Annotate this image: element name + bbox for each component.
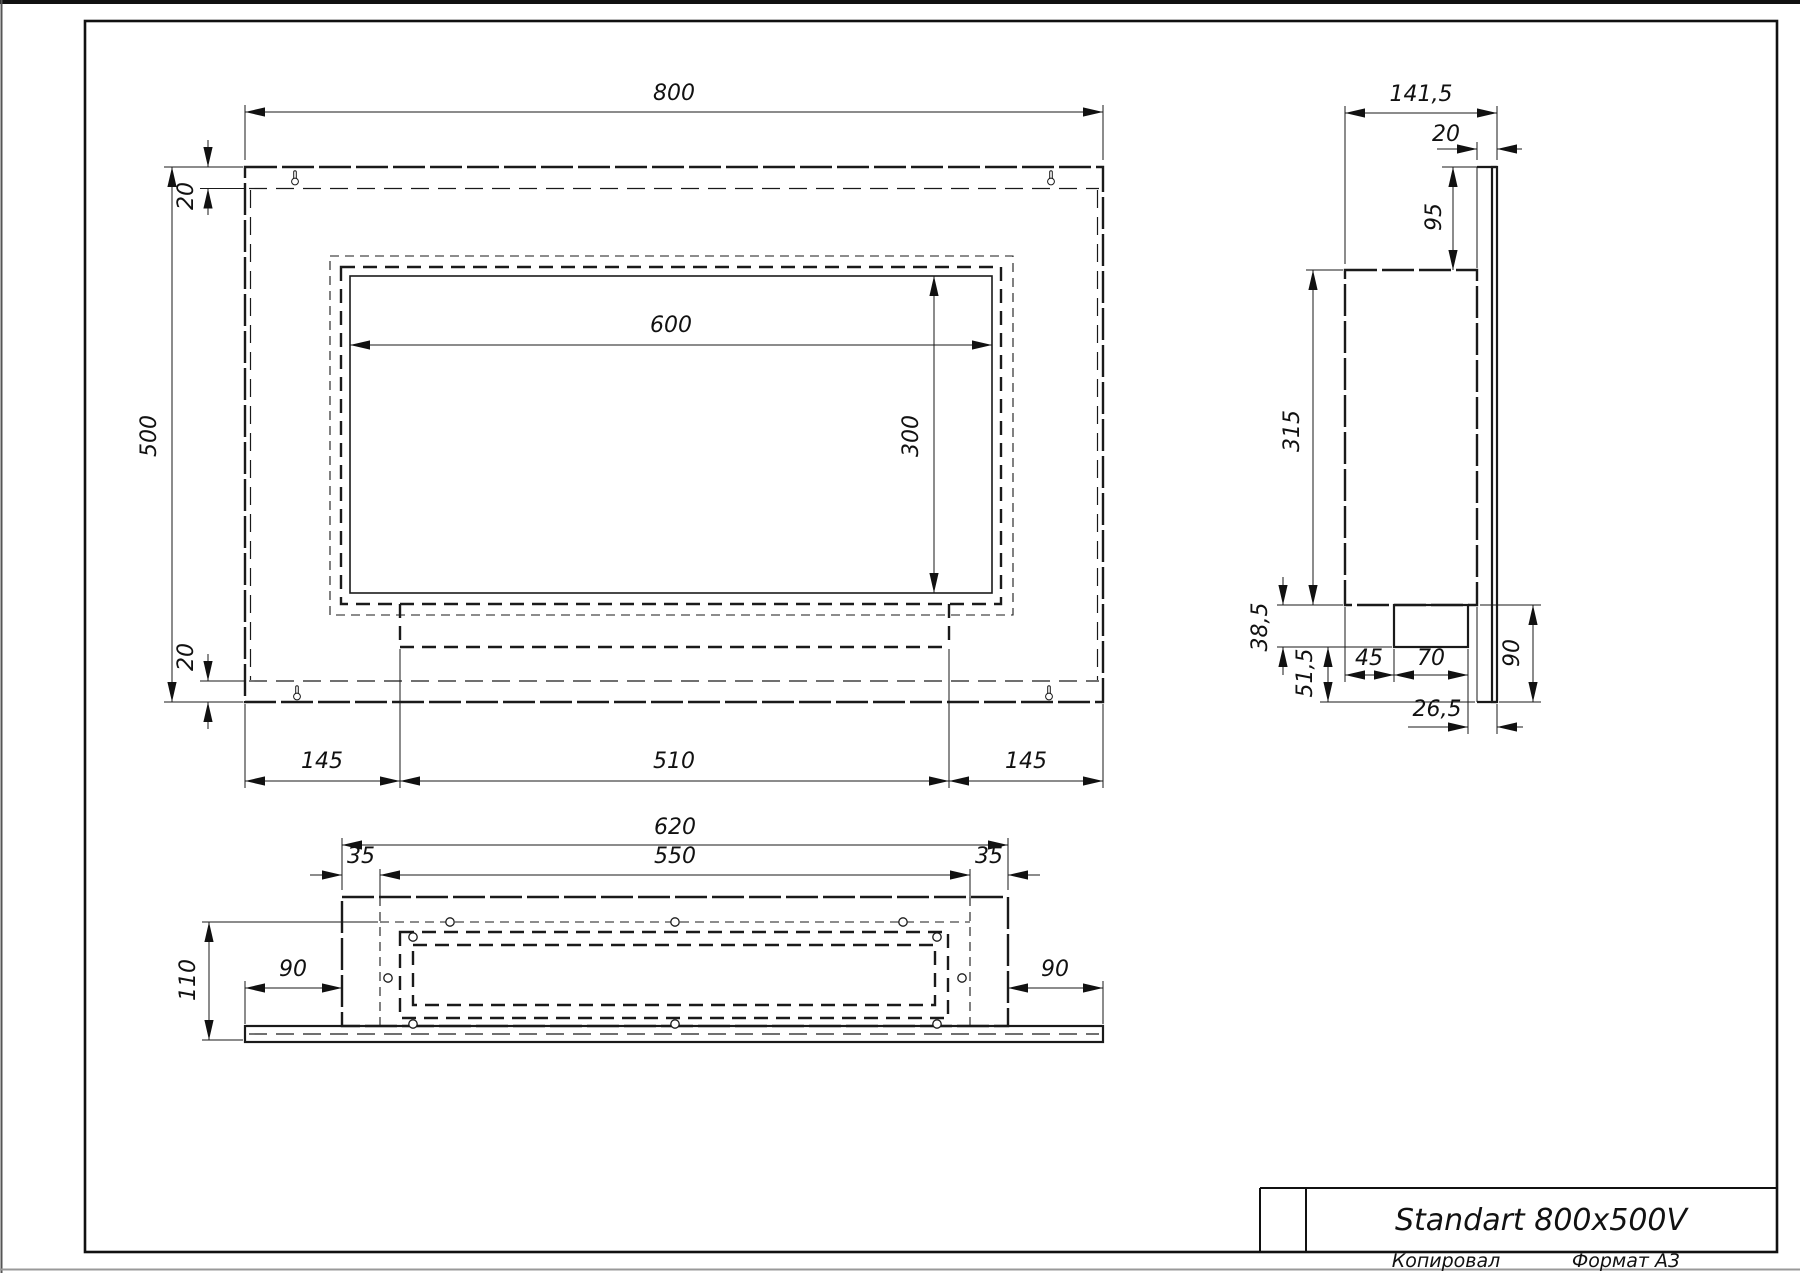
drawing-sheet: 800 500 20 20 600 300 145 510 145	[0, 0, 1800, 1273]
drawing-canvas: 800 500 20 20 600 300 145 510 145	[0, 0, 1800, 1273]
side-dimension-lines	[1283, 113, 1533, 727]
side-tray-outline	[1394, 605, 1468, 647]
bottom-extension-lines	[202, 838, 1103, 1040]
bottom-hidden-frame-inner	[413, 945, 935, 1005]
dim-front-width: 800	[653, 81, 695, 106]
dim-side-box-height: 315	[1280, 410, 1305, 452]
screen-top-edge	[0, 0, 1800, 4]
dim-front-flange-bottom: 20	[174, 643, 199, 671]
dim-front-flange-top: 20	[174, 182, 199, 210]
side-front-panel	[1492, 167, 1497, 702]
dim-front-opening-width: 600	[650, 313, 692, 338]
footer-format-label: Формат А3	[1572, 1250, 1680, 1272]
dim-front-opening-height: 300	[899, 415, 924, 457]
dim-side-flange-depth: 20	[1432, 122, 1460, 147]
dim-front-margin-left: 145	[301, 749, 343, 774]
dim-side-tray-drop: 38,5	[1248, 603, 1273, 652]
dim-side-top-offset: 95	[1422, 203, 1447, 231]
dim-bottom-overhang-left: 90	[279, 957, 307, 982]
dim-side-tray-depth: 70	[1417, 646, 1445, 671]
dim-bottom-box-width: 620	[654, 815, 696, 840]
dim-side-bottom-gap: 51,5	[1293, 649, 1318, 698]
front-view: 800 500 20 20 600 300 145 510 145	[137, 81, 1103, 788]
bottom-mounting-holes	[384, 918, 966, 1028]
drawing-title: Standart 800x500V	[1395, 1203, 1690, 1238]
dim-side-bottom-height: 90	[1500, 639, 1525, 667]
dim-side-depth: 141,5	[1390, 82, 1453, 107]
dim-front-tray-width: 510	[653, 749, 695, 774]
side-view: 141,5 20 95 315 38,5 51,5 45 70 90 26,5	[1248, 82, 1541, 734]
dim-bottom-inset-right: 35	[975, 844, 1003, 869]
front-extension-lines	[164, 105, 1103, 788]
side-box-outline	[1345, 270, 1477, 605]
dim-bottom-depth: 110	[176, 959, 201, 1001]
dim-side-tray-offset: 45	[1355, 646, 1383, 671]
dim-front-margin-right: 145	[1005, 749, 1047, 774]
title-block: Standart 800x500V	[1260, 1188, 1777, 1252]
bottom-box-outline	[342, 897, 1008, 1026]
front-panel-outline	[245, 167, 1103, 702]
dim-side-tray-to-front: 26,5	[1413, 697, 1462, 722]
bottom-view: 620 550 35 35 110 90 90	[176, 815, 1103, 1042]
dim-bottom-inset-left: 35	[347, 844, 375, 869]
drawing-frame	[85, 21, 1777, 1252]
footer-copied-label: Копировал	[1392, 1250, 1501, 1272]
dim-front-height: 500	[137, 415, 162, 457]
keyhole-slot-top-right	[1048, 171, 1055, 185]
dim-bottom-inner-width: 550	[654, 844, 696, 869]
dim-bottom-overhang-right: 90	[1041, 957, 1069, 982]
keyhole-slot-bottom-left	[294, 686, 301, 700]
keyhole-slot-bottom-right	[1046, 686, 1053, 700]
keyhole-slot-top-left	[292, 171, 299, 185]
